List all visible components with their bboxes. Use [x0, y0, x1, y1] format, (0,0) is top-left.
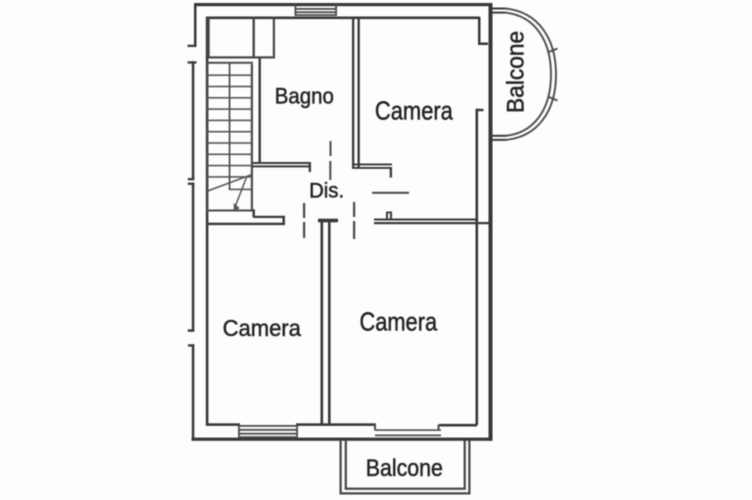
svg-text:Camera: Camera [360, 306, 438, 336]
svg-text:Dis.: Dis. [309, 180, 344, 203]
svg-text:Bagno: Bagno [275, 83, 334, 108]
svg-text:Balcone: Balcone [503, 31, 530, 113]
svg-text:Camera: Camera [223, 315, 302, 341]
svg-text:Camera: Camera [375, 96, 453, 126]
svg-text:Balcone: Balcone [366, 456, 443, 482]
